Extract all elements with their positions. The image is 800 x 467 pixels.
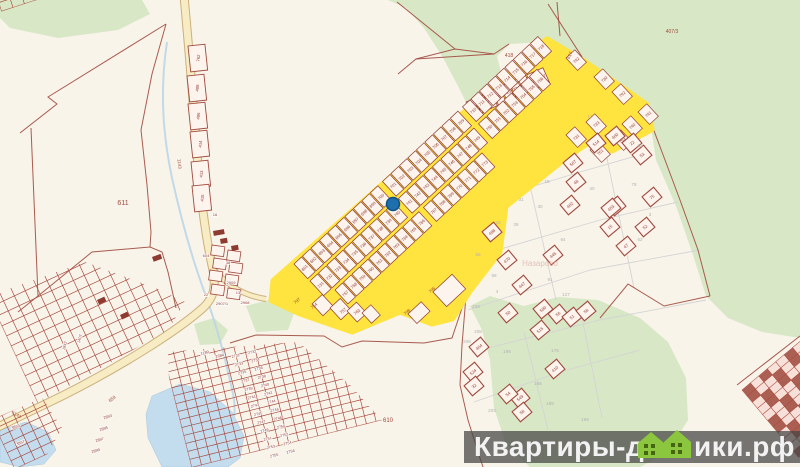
background-parcel-number: 62 [637, 237, 643, 242]
map-viewport[interactable]: 762408406414413415 719720721722723724725… [0, 0, 800, 467]
background-parcel-number: 58 [491, 273, 497, 278]
road-parcel[interactable]: 414 [190, 130, 210, 158]
road-parcel[interactable]: 408 [187, 74, 207, 102]
background-parcel-number: 196 [503, 349, 511, 354]
background-parcel-number: 11 [588, 114, 593, 119]
location-marker[interactable] [387, 198, 400, 211]
background-parcel-number: 18 [544, 179, 550, 184]
house-window [644, 451, 648, 455]
background-parcel-number: 23 [495, 220, 501, 225]
house-window [671, 450, 675, 454]
watermark-text-right: ики.рф [694, 431, 795, 462]
village-parcel-number: 13 [236, 290, 241, 295]
background-parcel-number: 33 [637, 143, 643, 148]
village-parcel [209, 270, 223, 282]
road-parcel[interactable]: 762 [188, 44, 208, 72]
background-parcel-number: 91 [547, 277, 553, 282]
background-parcel-number: 31 [518, 197, 524, 202]
village-parcel [229, 262, 243, 274]
parcel-number-label: 762 [196, 54, 202, 62]
marker-layer [387, 198, 400, 211]
parcel-number-label: 415 [200, 194, 206, 202]
region-label: 610 [383, 418, 394, 424]
background-parcel-number: 185 [534, 381, 542, 386]
background-parcel-number: 203 [488, 408, 496, 413]
road-parcel[interactable]: 406 [188, 102, 208, 130]
village-parcel-number: 16 [213, 212, 218, 217]
village-parcel-number: 2909 [227, 280, 237, 285]
cadastral-map-canvas[interactable]: 762408406414413415 719720721722723724725… [0, 0, 800, 467]
region-label: 407/3 [666, 29, 679, 35]
village-parcel-number: 38 [226, 260, 231, 265]
house-window [651, 451, 655, 455]
village-parcel-number: 604 [203, 253, 210, 258]
parcel-number-label: 413 [199, 170, 205, 178]
background-parcel-number: 3 [649, 212, 652, 217]
background-parcel-number: 64 [560, 237, 566, 242]
village-parcel-number: 2908 [241, 300, 251, 305]
house-window [671, 443, 675, 447]
background-parcel-number: 55 [475, 252, 481, 257]
village-parcel [213, 258, 227, 270]
background-parcel-number: 208 [474, 329, 482, 334]
background-parcel-number: 189 [546, 401, 554, 406]
region-label: 611 [117, 200, 128, 207]
background-parcel-number: 175 [551, 348, 559, 353]
watermark: Квартиры-до ики.рф [464, 430, 800, 463]
house-window [644, 444, 648, 448]
house-window [678, 443, 682, 447]
background-parcel-number: 4 [496, 289, 499, 294]
region-label: 418 [505, 53, 514, 59]
road-parcel[interactable]: 413 [191, 160, 211, 188]
village-parcel [211, 284, 225, 296]
background-parcel-number: 127 [562, 292, 570, 297]
road-parcel[interactable]: 415 [192, 184, 212, 212]
parcel-number-label: 414 [198, 140, 204, 148]
background-parcel-number: 30 [537, 204, 543, 209]
background-parcel-number: 206 [463, 339, 471, 344]
background-parcel-number: 40 [589, 186, 595, 191]
background-parcel-number: 78 [631, 182, 637, 187]
background-parcel-number: 233 [472, 304, 480, 309]
background-parcel-number: 28 [513, 222, 519, 227]
parcel-number-label: 406 [196, 112, 202, 120]
background-parcel-number: 169 [581, 417, 589, 422]
village-parcel [211, 245, 225, 257]
village-parcel-number: 22 [204, 292, 209, 297]
house-window [651, 444, 655, 448]
region-label: 1143 [176, 159, 182, 170]
parcel-number-label: 408 [195, 84, 201, 92]
region-label: Назарово [522, 259, 558, 268]
village-parcel-number: 2907/1 [216, 301, 229, 306]
watermark-text-left: Квартиры-до [474, 431, 662, 462]
house-window [678, 450, 682, 454]
